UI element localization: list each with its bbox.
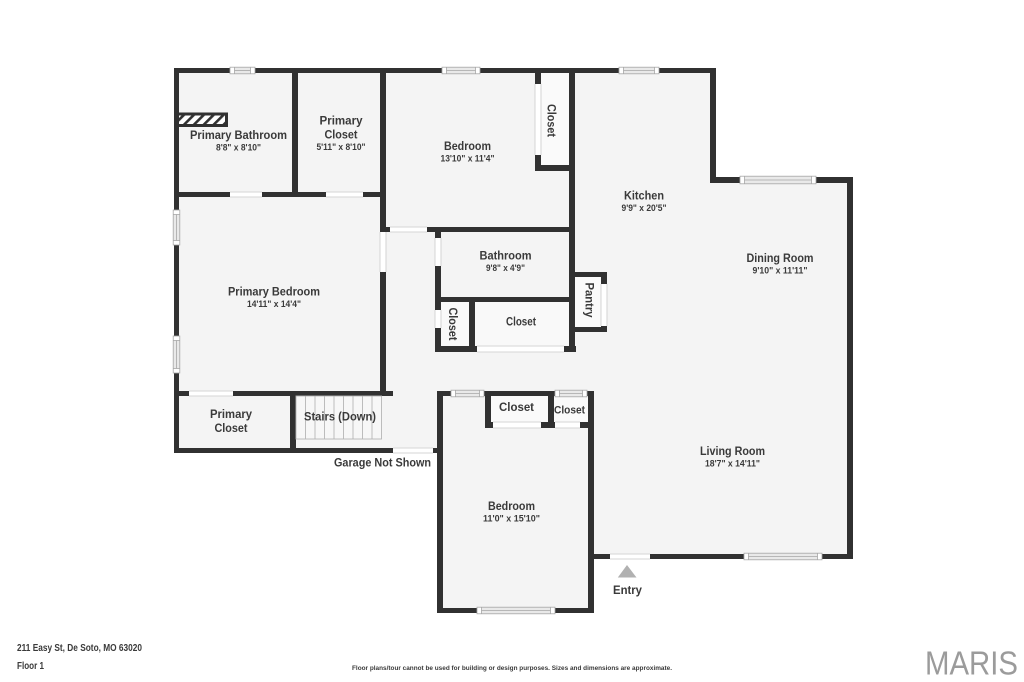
svg-text:Floor plans/tour cannot be use: Floor plans/tour cannot be used for buil… [352, 665, 672, 672]
svg-text:Primary Bathroom: Primary Bathroom [190, 128, 287, 142]
svg-text:Dining Room: Dining Room [747, 251, 814, 265]
svg-text:Entry: Entry [613, 583, 642, 597]
svg-text:Pantry: Pantry [583, 283, 597, 318]
svg-text:Closet: Closet [545, 104, 559, 137]
svg-text:11'0" x 15'10": 11'0" x 15'10" [483, 514, 540, 525]
svg-text:9'10" x 11'11": 9'10" x 11'11" [753, 266, 808, 277]
svg-text:Primary: Primary [320, 114, 363, 128]
svg-text:Closet: Closet [554, 405, 585, 417]
svg-text:Primary: Primary [210, 407, 252, 421]
svg-text:Bathroom: Bathroom [480, 249, 532, 263]
svg-text:8'8" x 8'10": 8'8" x 8'10" [216, 143, 261, 154]
svg-text:Bedroom: Bedroom [444, 139, 491, 153]
svg-text:Closet: Closet [215, 421, 248, 435]
svg-text:Primary Bedroom: Primary Bedroom [228, 285, 320, 299]
svg-text:Closet: Closet [446, 308, 460, 341]
svg-text:9'9" x 20'5": 9'9" x 20'5" [622, 203, 667, 214]
svg-text:Floor 1: Floor 1 [17, 661, 44, 672]
svg-text:5'11" x 8'10": 5'11" x 8'10" [317, 142, 366, 153]
svg-text:Garage Not Shown: Garage Not Shown [334, 456, 431, 470]
svg-text:Closet: Closet [325, 128, 358, 142]
svg-text:Closet: Closet [506, 315, 536, 329]
svg-text:Living Room: Living Room [700, 444, 765, 458]
svg-text:Bedroom: Bedroom [488, 499, 535, 513]
svg-text:14'11" x 14'4": 14'11" x 14'4" [247, 299, 301, 310]
svg-text:Stairs (Down): Stairs (Down) [304, 410, 376, 424]
svg-text:MARIS: MARIS [925, 644, 1018, 681]
svg-text:211 Easy St, De Soto, MO 63020: 211 Easy St, De Soto, MO 63020 [17, 643, 142, 654]
svg-text:Closet: Closet [499, 401, 534, 414]
svg-text:9'8" x 4'9": 9'8" x 4'9" [486, 263, 525, 274]
svg-text:18'7" x 14'11": 18'7" x 14'11" [705, 459, 760, 470]
svg-text:13'10" x 11'4": 13'10" x 11'4" [441, 154, 495, 165]
svg-text:Kitchen: Kitchen [624, 189, 664, 203]
